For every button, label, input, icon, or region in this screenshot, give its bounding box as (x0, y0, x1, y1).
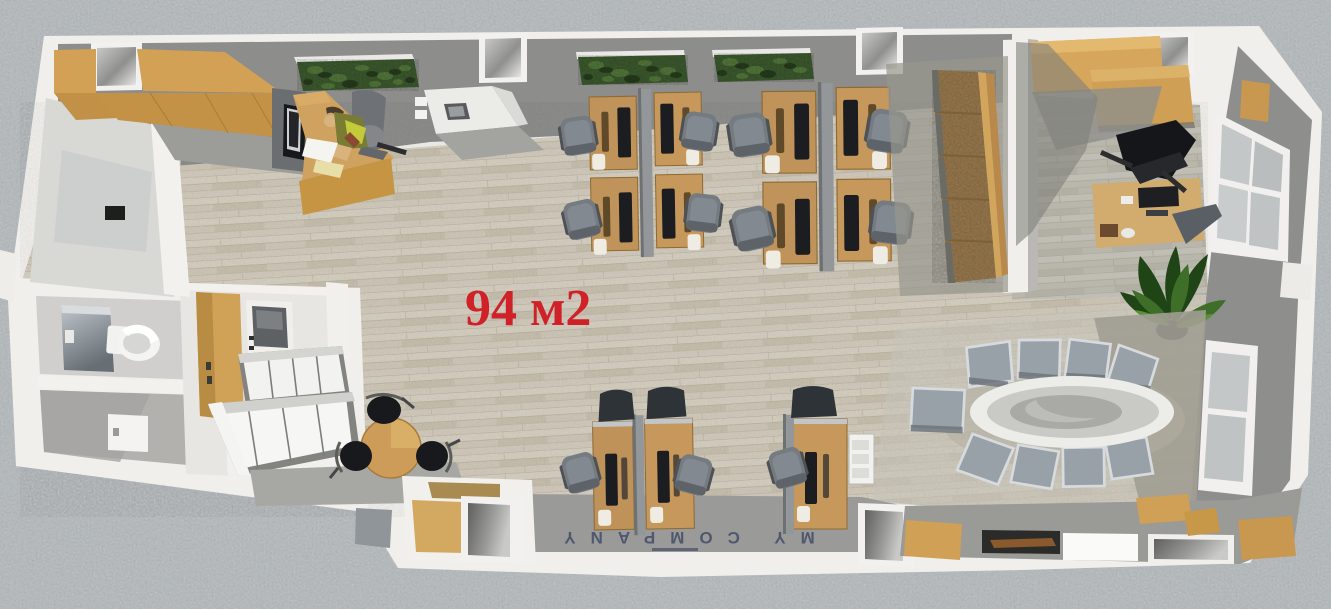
svg-text:MY COMPANY: MY COMPANY (549, 528, 815, 547)
svg-text:94 м2: 94 м2 (465, 280, 591, 337)
